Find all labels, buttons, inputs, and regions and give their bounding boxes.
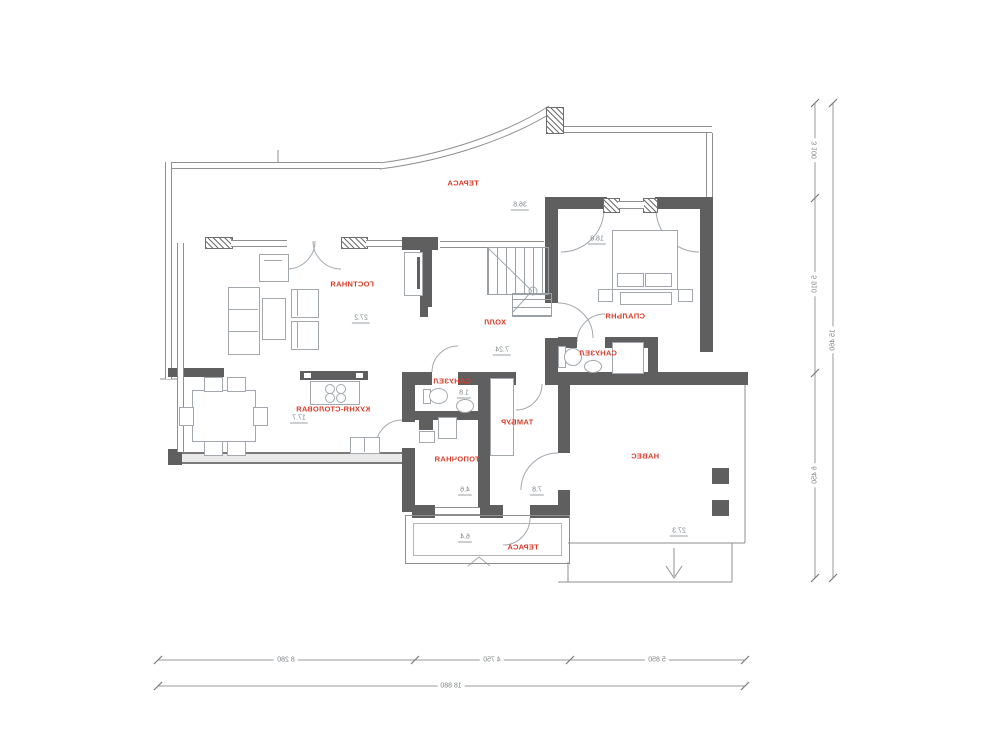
window [231, 240, 287, 247]
cabinet-line [264, 260, 282, 261]
door-arc-bedroom-window-left [561, 209, 604, 252]
terrace-curve-outer [380, 106, 549, 163]
wall-segment [478, 418, 490, 512]
stairs-upper-flight [487, 247, 549, 295]
sofa-cushion-line [228, 309, 258, 310]
armchair-line [297, 321, 298, 348]
wall-segment [402, 448, 415, 512]
column-hatch [341, 237, 368, 249]
water-tank [438, 417, 457, 439]
dim-right-segment-3: 6 450 [812, 463, 819, 487]
counter-appliance [304, 373, 311, 378]
terrace-bottom-inner [413, 523, 562, 556]
dining-table [192, 390, 256, 442]
chair [179, 407, 194, 426]
window [618, 201, 644, 209]
terrace-edge-top [165, 162, 381, 169]
nightstand [598, 289, 613, 302]
door-arc-tambour-north [516, 384, 542, 410]
column-hatch [205, 237, 233, 249]
chair [204, 377, 223, 392]
room-area-boiler: 4.6 [458, 487, 472, 496]
terrace-curve-inner [380, 112, 553, 169]
pillow [617, 273, 644, 287]
sofa [228, 287, 260, 355]
tv-stand [404, 252, 423, 296]
window [366, 240, 402, 247]
door-arc-small-bath [432, 346, 458, 372]
burner [325, 393, 335, 403]
wall-segment [648, 337, 658, 377]
room-area-carport: 27.3 [670, 528, 688, 537]
chair [227, 441, 246, 456]
room-label-tambour: ТАМБУР [501, 418, 533, 427]
room-label-bath-master: САНУЗЕЛ [579, 349, 617, 358]
cabinet-divider [364, 437, 365, 452]
window [435, 507, 480, 515]
tv-screen [417, 257, 420, 289]
column-hatch [546, 107, 564, 134]
cabinet [259, 254, 289, 282]
room-area-living: 27.2 [352, 315, 370, 324]
dim-right-segment-1: 3 100 [812, 138, 819, 162]
terrace-edge-left [165, 162, 172, 379]
door-arc-tambour-east [521, 453, 558, 490]
wall-segment [558, 490, 570, 518]
dim-bottom-total: 18 880 [437, 683, 464, 690]
wall-segment [420, 305, 428, 317]
terrace-edge-east [706, 133, 713, 199]
door-arc-living-left [287, 241, 315, 269]
armchair-line [297, 289, 298, 316]
kitchen-island [310, 381, 360, 405]
dim-right-total: 15 460 [830, 326, 837, 353]
shower [612, 342, 644, 374]
coffee-table [262, 298, 286, 340]
kitchen-cabinet [350, 437, 380, 454]
stairs-lower-flight [512, 293, 552, 317]
door-arc-master-bath [577, 314, 605, 342]
door-arc-living-right [313, 241, 341, 269]
terrace-edge-northeast [560, 126, 712, 133]
bed-bench [620, 292, 672, 305]
window [177, 243, 184, 375]
room-label-bath-small: САНУЗЕЛ [433, 377, 471, 386]
burner [336, 393, 346, 403]
boiler-base [419, 431, 435, 443]
room-label-bedroom: СПАЛЬНЯ [605, 312, 645, 321]
toilet [429, 388, 448, 404]
room-label-terrace-top: ТЕРАСА [447, 179, 479, 188]
wall-segment [402, 372, 432, 385]
wall-segment [558, 385, 570, 453]
counter-appliance [356, 373, 363, 378]
room-label-terrace-bottom: ТЕРАСА [507, 543, 539, 552]
chair [204, 441, 223, 456]
wall-segment [700, 199, 713, 352]
floor-plan: ТЕРАСА 36.8 СПАЛЬНЯ 18.8 ГОСТИНАЯ 27.2 Х… [0, 0, 1000, 750]
room-label-carport: НАВЕС [631, 452, 659, 461]
chair [253, 407, 268, 426]
wall-segment [402, 237, 438, 250]
armchair [291, 321, 319, 350]
carport-post [712, 500, 729, 516]
wall-segment [478, 385, 490, 418]
room-area-bath-small: 1.8 [457, 390, 471, 399]
room-area-tambour: 7.8 [530, 487, 544, 496]
room-area-terrace-bottom: 6.4 [458, 534, 472, 543]
sink [456, 399, 474, 413]
room-area-bedroom: 18.8 [588, 236, 606, 245]
room-label-kitchen: КУХНЯ-СТОЛОВАЯ [296, 405, 370, 414]
room-area-terrace-top: 36.8 [511, 202, 529, 211]
room-area-kitchen: 17.7 [290, 415, 308, 424]
pillow [645, 273, 672, 287]
sink [584, 360, 602, 373]
wall-segment [545, 372, 748, 385]
chair [227, 377, 246, 392]
sofa-cushion-line [228, 331, 258, 332]
dim-right-segment-2: 5 910 [812, 272, 819, 296]
room-label-boiler: ТОПОЧНАЯ [434, 455, 479, 464]
nightstand [678, 289, 693, 302]
room-label-living: ГОСТИНАЯ [330, 280, 374, 289]
armchair [291, 289, 319, 318]
dim-bottom-segment-1: 8 280 [274, 657, 298, 664]
room-area-hall: 7.24 [493, 347, 511, 356]
entrance-arrow [666, 548, 682, 578]
carport-post [712, 468, 729, 484]
column-hatch [643, 198, 658, 213]
room-label-hall: ХОЛЛ [484, 318, 506, 327]
dim-bottom-segment-2: 4 750 [480, 657, 504, 664]
boiler [419, 419, 433, 430]
dim-bottom-segment-3: 5 850 [645, 657, 669, 664]
